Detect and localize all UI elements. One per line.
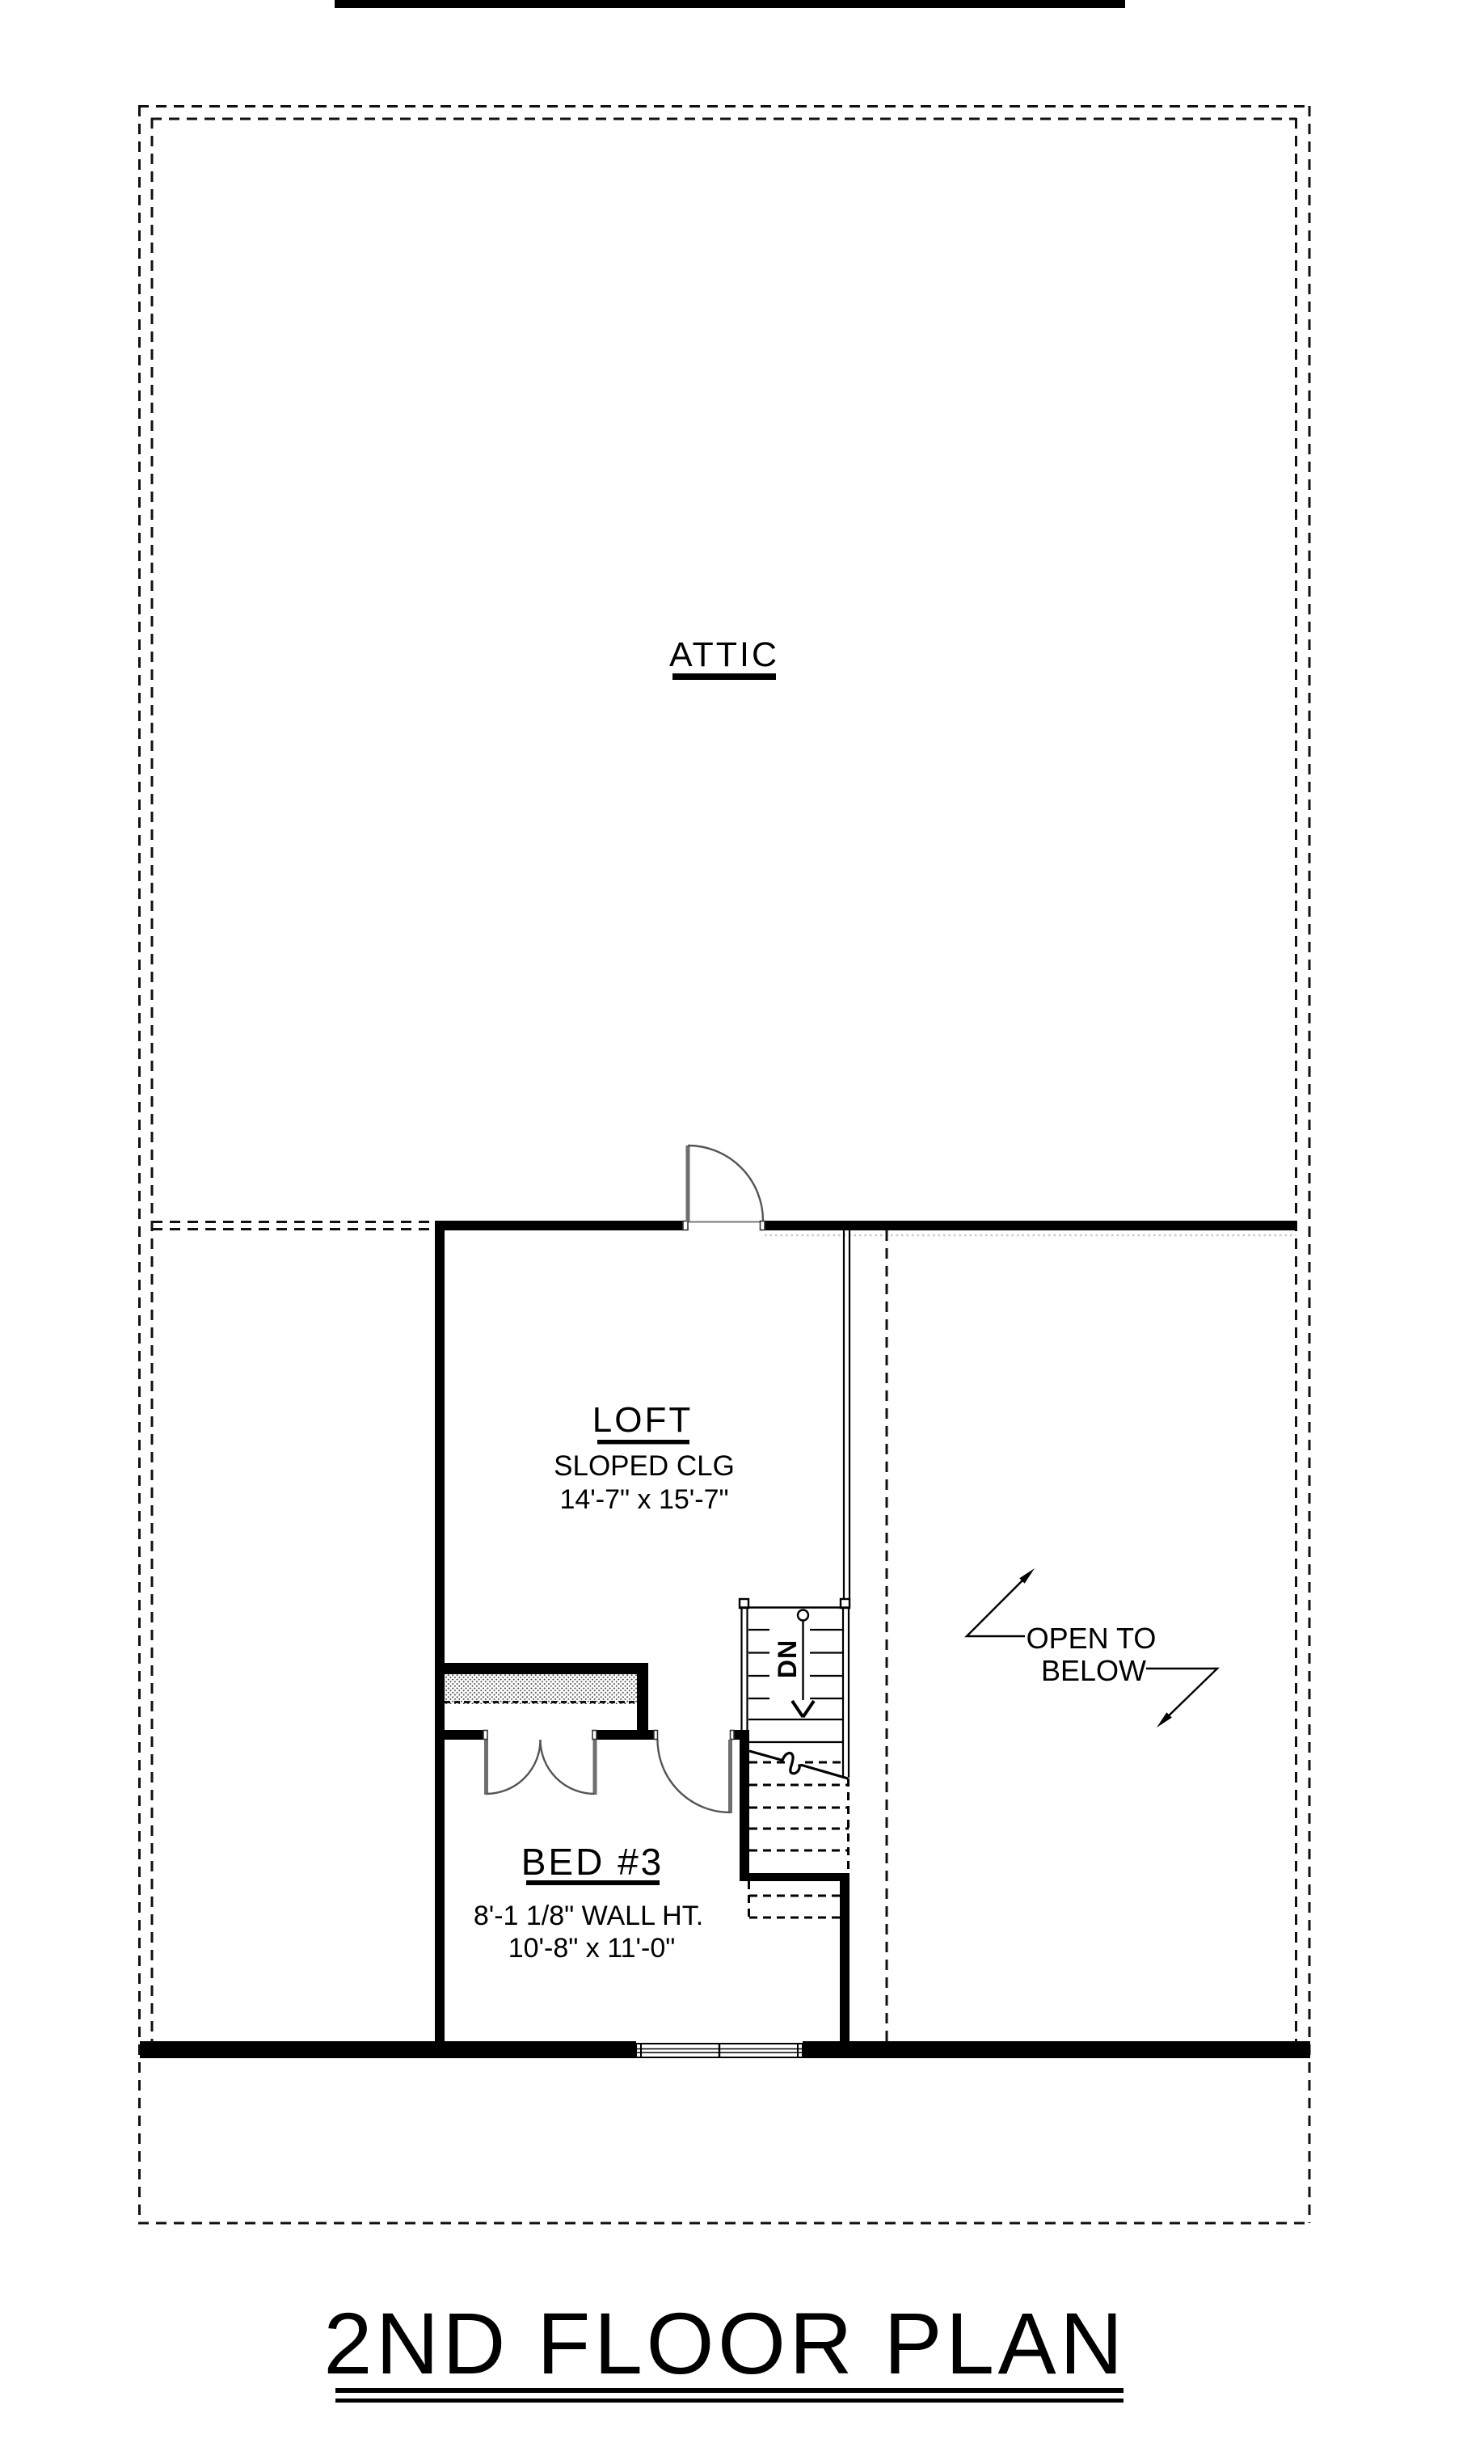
- svg-text:BELOW: BELOW: [1041, 1654, 1146, 1687]
- svg-text:SLOPED CLG: SLOPED CLG: [554, 1450, 735, 1482]
- svg-text:DN: DN: [773, 1639, 802, 1678]
- svg-text:14'-7" x 15'-7": 14'-7" x 15'-7": [559, 1484, 728, 1515]
- svg-text:8'-1 1/8" WALL HT.: 8'-1 1/8" WALL HT.: [474, 1901, 703, 1931]
- svg-text:BED #3: BED #3: [521, 1841, 664, 1883]
- svg-text:2ND FLOOR PLAN: 2ND FLOOR PLAN: [323, 2294, 1126, 2392]
- svg-text:OPEN TO: OPEN TO: [1027, 1622, 1157, 1655]
- svg-text:10'-8" x 11'-0": 10'-8" x 11'-0": [508, 1933, 676, 1964]
- svg-text:LOFT: LOFT: [592, 1400, 693, 1440]
- svg-text:ATTIC: ATTIC: [669, 635, 779, 674]
